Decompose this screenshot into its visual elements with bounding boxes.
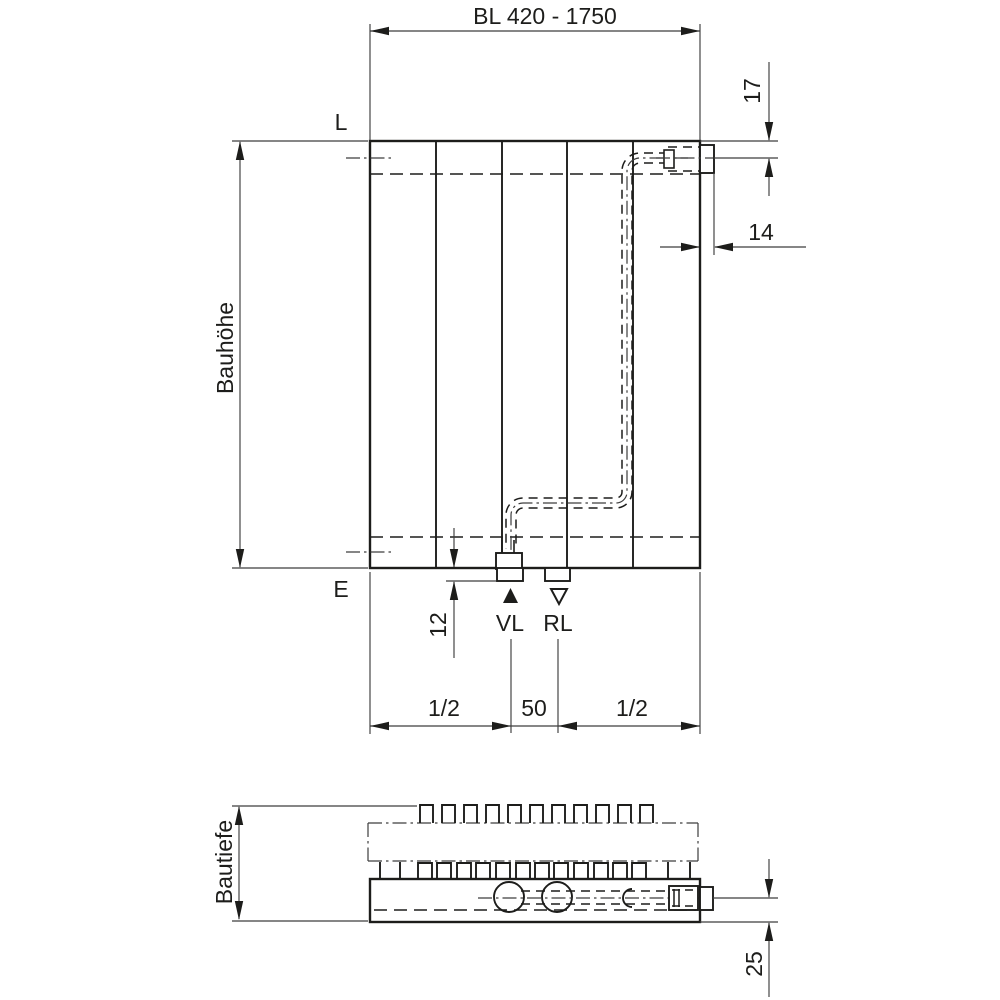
stub-depth-label: 12	[425, 612, 451, 638]
height-label: Bauhöhe	[212, 302, 238, 394]
bottom-center-label: 50	[521, 695, 547, 721]
rear-offset-label: 25	[741, 951, 767, 977]
bottom-right-half-label: 1/2	[616, 695, 648, 721]
supply-stub	[497, 568, 523, 581]
vent-marker-label: L	[335, 109, 348, 135]
return-label: RL	[543, 610, 573, 636]
supply-label: VL	[496, 610, 524, 636]
drain-marker-label: E	[333, 576, 348, 602]
return-stub	[545, 568, 570, 581]
fitting-outer-block	[700, 145, 714, 173]
panel-body	[370, 879, 700, 922]
depth-label: Bautiefe	[211, 820, 237, 904]
bottom-left-half-label: 1/2	[428, 695, 460, 721]
plan-outer-block	[700, 887, 713, 910]
radiator-body	[370, 141, 700, 568]
plan-fitting	[669, 886, 713, 910]
top-offset-label: 17	[739, 78, 765, 104]
radiator-technical-drawing: BL 420 - 1750 17 14 Bauhöhe L E 12 VL RL…	[0, 0, 1000, 1000]
valve-body	[496, 553, 522, 569]
fitting-nut	[664, 150, 674, 168]
side-offset-label: 14	[748, 219, 774, 245]
overall-length-label: BL 420 - 1750	[473, 3, 617, 29]
